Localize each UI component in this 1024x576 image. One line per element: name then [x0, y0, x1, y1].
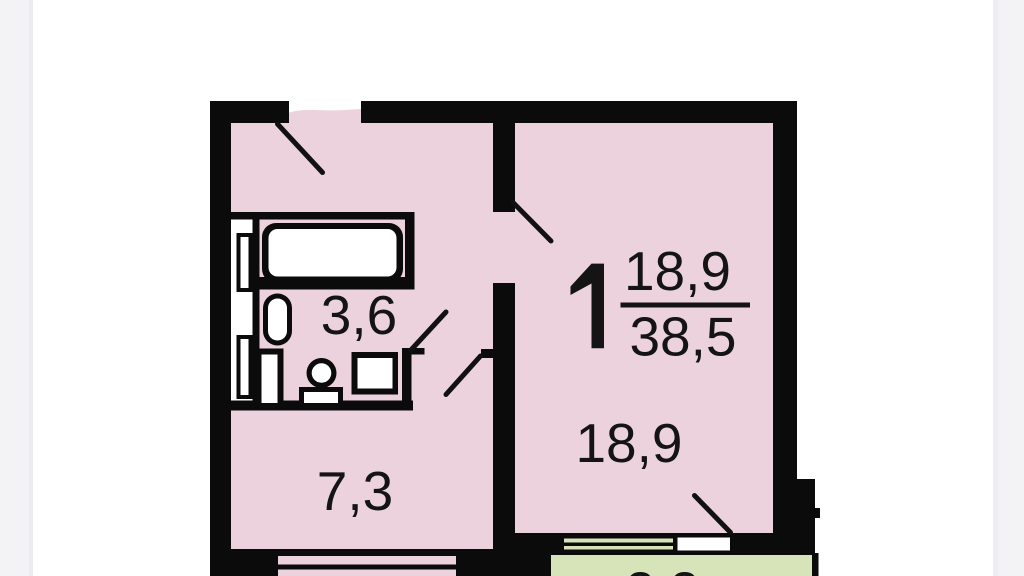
- svg-text:3,6: 3,6: [321, 284, 397, 346]
- svg-text:38,5: 38,5: [629, 306, 736, 368]
- svg-text:18,9: 18,9: [575, 412, 682, 474]
- svg-text:18,9: 18,9: [624, 240, 731, 302]
- svg-text:7,3: 7,3: [317, 460, 393, 522]
- svg-text:3,3: 3,3: [626, 562, 700, 576]
